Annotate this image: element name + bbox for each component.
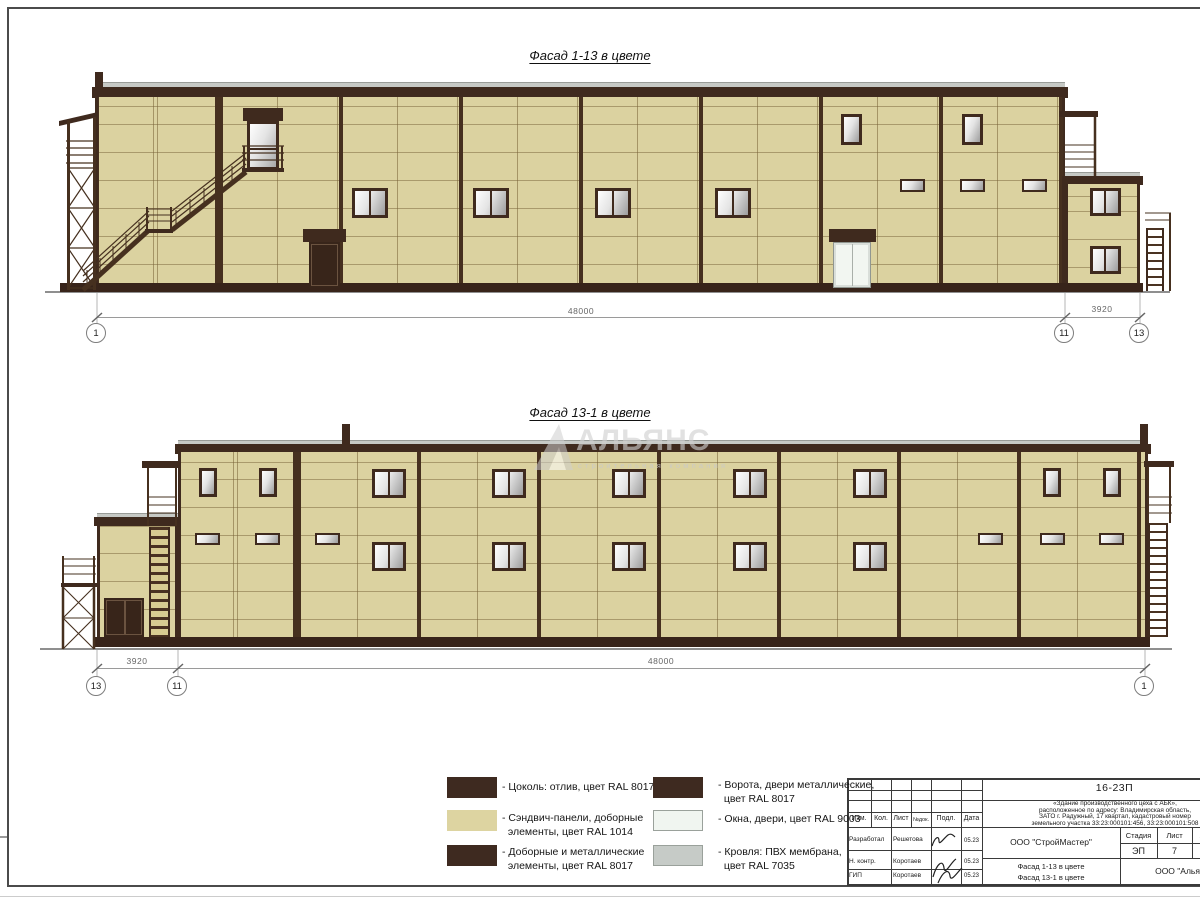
legend-swatch-windows [653, 810, 703, 831]
window [259, 468, 277, 497]
window [841, 114, 862, 145]
doc-number: 16-23П [982, 782, 1200, 794]
legend-label: - Окна, двери, цвет RAL 9003 [718, 813, 861, 827]
metal-double-door [104, 598, 144, 637]
axis-bubble-13: 13 [1129, 323, 1149, 343]
row-role: ГИП [849, 872, 890, 879]
row-role: Н. контр. [849, 858, 890, 865]
exterior-ladder [1148, 523, 1168, 637]
sheets-label: Листов [1192, 831, 1200, 840]
row-date: 05.23 [961, 873, 982, 879]
window-small [960, 179, 985, 192]
annex-parapet [94, 517, 181, 526]
window [199, 468, 217, 497]
legend-label: - Кровля: ПВХ мембрана, цвет RAL 7035 [718, 846, 842, 873]
roof-post [95, 72, 103, 87]
plinth [60, 283, 1143, 292]
ground-line [40, 648, 1172, 650]
window [853, 469, 887, 498]
drawing-sheet: Фасад 1-13 в цвете Фасад 13-1 в цвете [0, 0, 1200, 900]
legend-label: - Доборные и металлические элементы, цве… [502, 846, 644, 873]
window [1043, 468, 1061, 497]
legend-swatch-trim [447, 845, 497, 866]
sheet-number: 7 [1157, 846, 1192, 856]
legend-swatch-roof [653, 845, 703, 866]
legend-label: - Цоколь: отлив, цвет RAL 8017 [502, 781, 654, 795]
annex-window [1090, 246, 1121, 274]
fold-mark [0, 836, 7, 838]
legend-swatch-panels [447, 810, 497, 831]
annex-window [1090, 188, 1121, 216]
facade-13-1-title: Фасад 13-1 в цвете [460, 405, 720, 420]
row-date: 05.23 [961, 838, 982, 844]
window [612, 542, 646, 571]
door-header [829, 229, 876, 242]
watermark-subtitle: строительная компания [578, 461, 728, 470]
window-small [900, 179, 925, 192]
dimension-3920: 3920 [1062, 304, 1142, 314]
window [733, 469, 767, 498]
window [715, 188, 751, 218]
window-small [1022, 179, 1047, 192]
col-kol: Кол. [871, 815, 891, 822]
row-name: Решетова [893, 836, 930, 843]
window-small [1099, 533, 1124, 545]
window-small [1040, 533, 1065, 545]
plinth [95, 637, 1150, 647]
facade-1-13-title: Фасад 1-13 в цвете [460, 48, 720, 63]
dimension-48000: 48000 [541, 306, 621, 316]
roof-post [1140, 424, 1148, 446]
window [492, 469, 526, 498]
window [473, 188, 509, 218]
window [372, 542, 406, 571]
col-list: Лист [891, 815, 911, 822]
window [853, 542, 887, 571]
dimension-48000: 48000 [621, 656, 701, 666]
stair-landing-door [247, 121, 279, 170]
window [733, 542, 767, 571]
project-description: «Здание производственного цеха с АБК», р… [984, 801, 1200, 828]
row-date: 05.23 [961, 859, 982, 865]
window [962, 114, 983, 145]
row-name: Коротаев [893, 872, 930, 879]
legend-swatch-gates [653, 777, 703, 798]
paper-edge [0, 896, 1200, 897]
design-company: ООО "СтройМастер" [982, 837, 1120, 847]
exterior-ladder [1146, 228, 1164, 291]
stage-value: ЭП [1120, 846, 1157, 856]
window [352, 188, 388, 218]
roof-post [342, 424, 350, 446]
legend-label: - Сэндвич-панели, доборные элементы, цве… [502, 812, 643, 839]
sheets-total: 1 [1192, 846, 1200, 856]
window [372, 469, 406, 498]
window [1103, 468, 1121, 497]
sheet-content-titles: Фасад 1-13 в цвете Фасад 13-1 в цвете [982, 862, 1120, 884]
axis-bubble-11: 11 [1054, 323, 1074, 343]
legend-swatch-plinth [447, 777, 497, 798]
col-izm: Изм. [847, 815, 871, 822]
window-small [255, 533, 280, 545]
window-small [195, 533, 220, 545]
row-role: Разработал [849, 836, 890, 843]
window-small [315, 533, 340, 545]
axis-bubble-1: 1 [1134, 676, 1154, 696]
metal-door [309, 242, 340, 288]
axis-bubble-13: 13 [86, 676, 106, 696]
door-header [303, 229, 346, 242]
window [612, 469, 646, 498]
contractor-company: ООО "Альянс" [1120, 866, 1200, 876]
legend-label: - Ворота, двери металлические, цвет RAL … [718, 779, 874, 806]
window-small [978, 533, 1003, 545]
exterior-ladder [149, 527, 170, 637]
col-podl: Подл. [931, 815, 961, 822]
door-header [243, 108, 283, 121]
window [595, 188, 631, 218]
col-data: Дата [961, 815, 982, 822]
window [492, 542, 526, 571]
axis-bubble-1: 1 [86, 323, 106, 343]
col-ndok: №док. [911, 817, 931, 823]
row-name: Коротаев [893, 858, 930, 865]
entrance-door [833, 242, 871, 288]
axis-bubble-11: 11 [167, 676, 187, 696]
watermark-logo-text: АЛЬЯНС [576, 424, 710, 458]
dimension-3920: 3920 [97, 656, 177, 666]
sheet-label: Лист [1157, 831, 1192, 840]
stage-label: Стадия [1120, 831, 1157, 840]
